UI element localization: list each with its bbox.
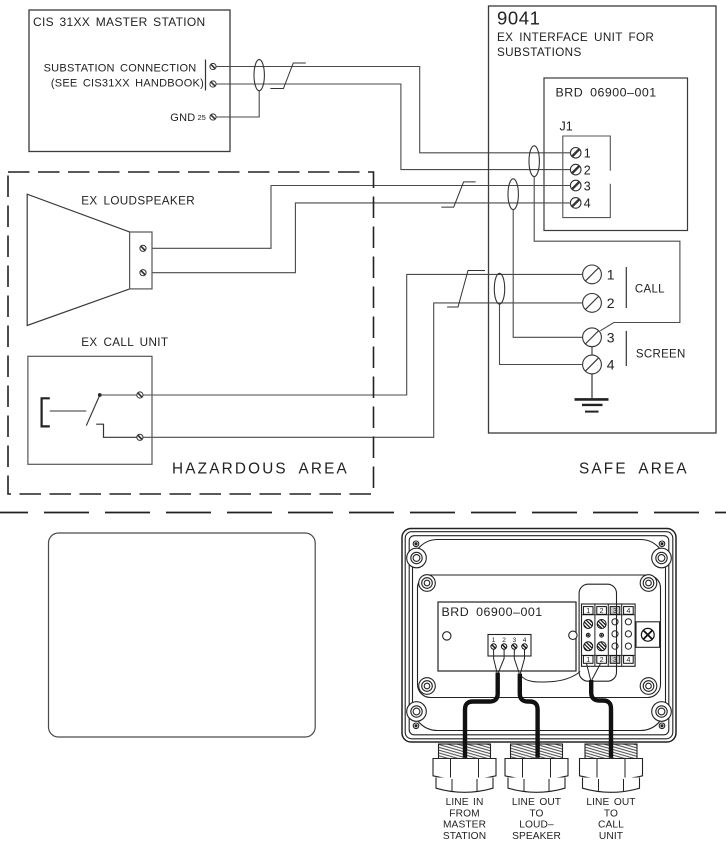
svg-text:BRD 06900–001: BRD 06900–001 [442,605,543,619]
svg-text:SAFE AREA: SAFE AREA [579,460,689,477]
svg-text:EX CALL UNIT: EX CALL UNIT [81,336,168,349]
svg-text:GND: GND [170,112,195,124]
svg-text:4: 4 [523,637,527,644]
svg-text:4: 4 [626,608,630,615]
svg-text:3: 3 [607,329,615,345]
svg-text:1: 1 [586,608,590,615]
svg-text:2: 2 [600,608,604,615]
svg-text:BRD 06900–001: BRD 06900–001 [556,85,657,99]
svg-text:1: 1 [586,657,590,664]
svg-text:3: 3 [512,637,516,644]
svg-text:1: 1 [584,147,591,161]
svg-text:4: 4 [607,357,615,373]
svg-text:1: 1 [492,637,496,644]
svg-text:3: 3 [584,179,591,193]
svg-text:25: 25 [198,113,206,122]
svg-text:2: 2 [584,163,591,177]
svg-text:EX LOUDSPEAKER: EX LOUDSPEAKER [81,195,195,208]
svg-text:SUBSTATIONS: SUBSTATIONS [497,46,582,59]
svg-text:2: 2 [600,657,604,664]
svg-text:J1: J1 [560,120,573,134]
svg-text:HAZARDOUS AREA: HAZARDOUS AREA [172,460,349,477]
svg-text:2: 2 [607,295,615,311]
svg-text:9041: 9041 [497,8,541,29]
svg-text:CALL: CALL [635,284,665,296]
svg-text:2: 2 [502,637,506,644]
svg-text:(SEE CIS31XX HANDBOOK): (SEE CIS31XX HANDBOOK) [51,77,204,89]
svg-text:SUBSTATION CONNECTION: SUBSTATION CONNECTION [44,63,197,75]
svg-text:4: 4 [584,197,591,211]
svg-text:LINE INFROMMASTERSTATION: LINE INFROMMASTERSTATION [443,797,486,842]
svg-text:SCREEN: SCREEN [636,348,686,360]
svg-text:EX INTERFACE UNIT FOR: EX INTERFACE UNIT FOR [497,31,654,44]
svg-text:1: 1 [607,266,615,282]
svg-text:CIS 31XX MASTER STATION: CIS 31XX MASTER STATION [33,15,206,29]
svg-text:4: 4 [626,657,630,664]
